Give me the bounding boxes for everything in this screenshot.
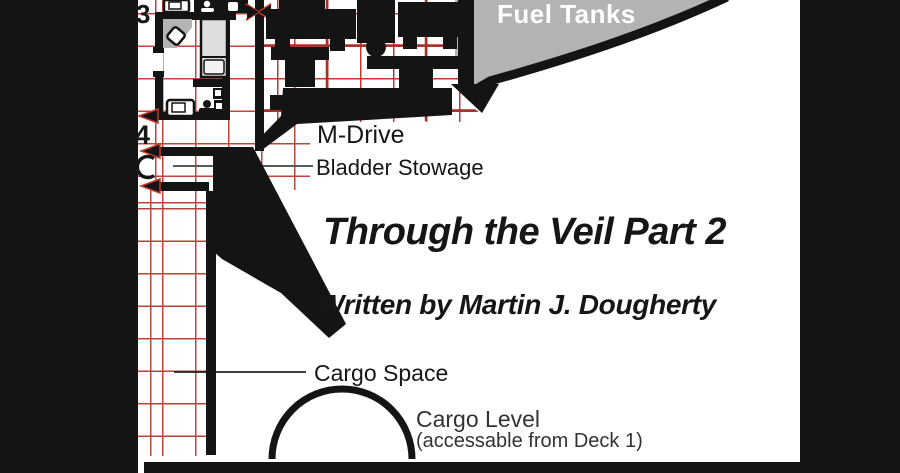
stateroom-door-gap (155, 53, 163, 71)
hull-vertex (451, 84, 499, 113)
bathroom-vanity-icon (213, 88, 228, 99)
bladder-stowage-label: Bladder Stowage (316, 156, 484, 179)
deck-marker-4: 4 (135, 121, 150, 149)
bottom-black-bar (144, 462, 900, 473)
cargo-level-arc (272, 389, 412, 459)
m-drive-label: M-Drive (317, 122, 405, 148)
left-black-panel (0, 0, 138, 473)
cargo-space-label: Cargo Space (314, 361, 448, 385)
page-byline: Written by Martin J. Dougherty (318, 290, 716, 319)
top-counter-icon (222, 0, 248, 13)
bathroom-sink-icon (167, 100, 194, 116)
deck-marker-3: 3 (136, 1, 150, 28)
bathroom-toilet-icon (199, 100, 215, 114)
fuel-tanks-label: Fuel Tanks (497, 1, 636, 28)
door-frame-tick-top (153, 47, 164, 53)
cargo-level-label-line2: (accessable from Deck 1) (416, 431, 643, 452)
bed (201, 19, 227, 77)
bathroom-counter-icon (214, 100, 229, 116)
top-sink-icon (164, 0, 189, 12)
right-black-panel (800, 0, 900, 473)
page-title: Through the Veil Part 2 (323, 213, 726, 253)
top-toilet-icon (194, 0, 222, 13)
door-swing-arc (137, 157, 154, 178)
cargo-level-label-line1: Cargo Level (416, 407, 540, 431)
door-frame-tick-bottom (153, 71, 164, 77)
deck-plan-page: Fuel Tanks 3 4 M-Drive Bladder Stowage T… (0, 0, 900, 473)
